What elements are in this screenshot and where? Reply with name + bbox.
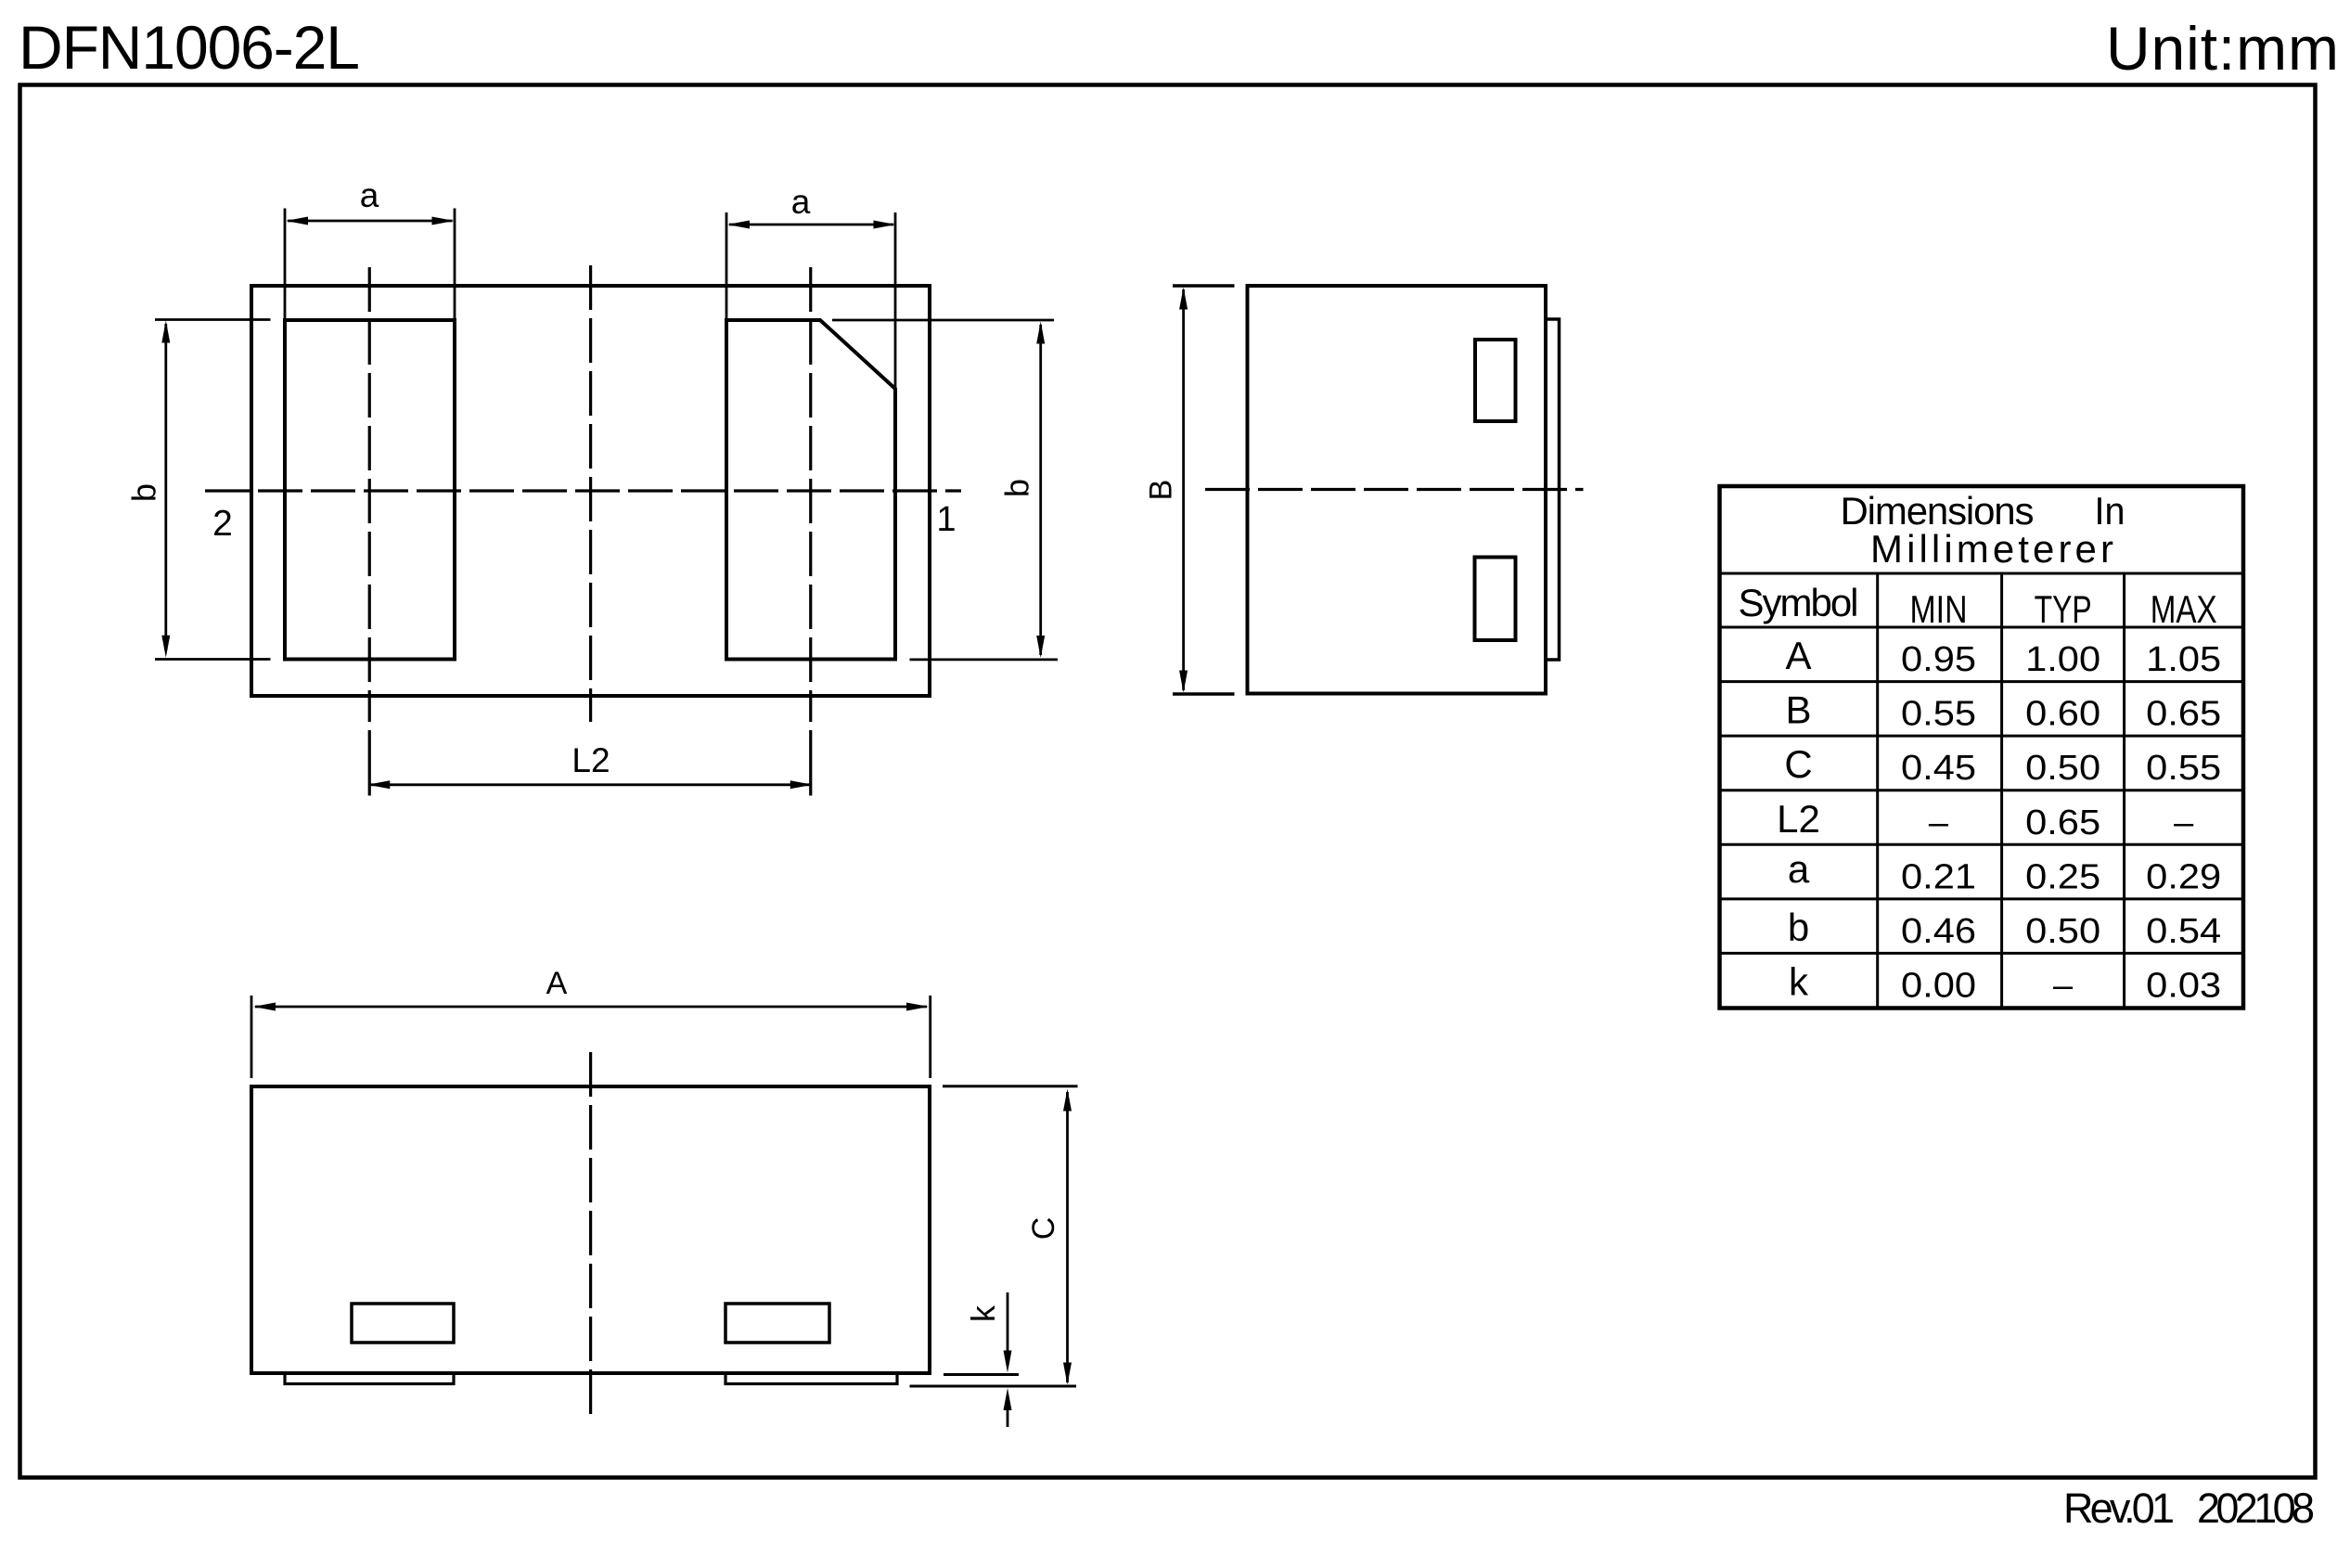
svg-text:DFN1006-2L: DFN1006-2L bbox=[19, 13, 360, 82]
svg-text:0.95: 0.95 bbox=[1901, 640, 1976, 679]
svg-text:–: – bbox=[2174, 803, 2194, 842]
svg-text:a: a bbox=[360, 176, 379, 214]
svg-text:0.65: 0.65 bbox=[2146, 695, 2221, 734]
svg-text:Unit:mm: Unit:mm bbox=[2106, 14, 2339, 83]
svg-text:b: b bbox=[1788, 906, 1809, 949]
svg-text:0.54: 0.54 bbox=[2146, 912, 2221, 951]
svg-text:C: C bbox=[1026, 1217, 1061, 1240]
svg-text:k: k bbox=[1789, 960, 1809, 1004]
svg-text:L2: L2 bbox=[571, 741, 610, 779]
svg-text:202108: 202108 bbox=[2197, 1484, 2315, 1532]
svg-text:–: – bbox=[1929, 803, 1949, 842]
svg-text:0.45: 0.45 bbox=[1901, 749, 1976, 788]
svg-text:0.21: 0.21 bbox=[1901, 857, 1976, 896]
svg-text:0.50: 0.50 bbox=[2025, 749, 2100, 788]
svg-text:MAX: MAX bbox=[2151, 587, 2217, 631]
svg-text:A: A bbox=[1785, 634, 1811, 677]
svg-text:b: b bbox=[998, 479, 1036, 497]
svg-text:0.55: 0.55 bbox=[2146, 749, 2221, 788]
svg-text:a: a bbox=[1788, 847, 1810, 891]
svg-text:1.05: 1.05 bbox=[2146, 640, 2221, 679]
svg-text:Dimensions: Dimensions bbox=[1841, 489, 2035, 533]
svg-text:–: – bbox=[2053, 967, 2074, 1006]
svg-text:B: B bbox=[1785, 688, 1811, 732]
svg-text:A: A bbox=[546, 966, 568, 1001]
svg-text:0.29: 0.29 bbox=[2146, 857, 2221, 896]
svg-text:a: a bbox=[791, 183, 811, 221]
svg-text:0.55: 0.55 bbox=[1901, 695, 1976, 734]
svg-text:b: b bbox=[125, 483, 163, 502]
svg-text:0.65: 0.65 bbox=[2025, 803, 2100, 842]
svg-text:Millimeterer: Millimeterer bbox=[1870, 527, 2113, 571]
svg-text:C: C bbox=[1784, 742, 1812, 786]
svg-text:B: B bbox=[1144, 480, 1179, 501]
svg-text:0.00: 0.00 bbox=[1901, 967, 1976, 1006]
svg-text:0.50: 0.50 bbox=[2025, 912, 2100, 951]
svg-text:1: 1 bbox=[936, 500, 956, 539]
svg-text:0.03: 0.03 bbox=[2146, 967, 2221, 1006]
svg-text:0.46: 0.46 bbox=[1901, 912, 1976, 951]
svg-text:In: In bbox=[2095, 489, 2125, 533]
svg-text:TYP: TYP bbox=[2035, 587, 2092, 631]
svg-text:Rev.01: Rev.01 bbox=[2063, 1484, 2175, 1532]
svg-text:k: k bbox=[964, 1305, 1002, 1322]
svg-text:1.00: 1.00 bbox=[2025, 640, 2100, 679]
svg-text:L2: L2 bbox=[1777, 797, 1820, 841]
svg-text:0.25: 0.25 bbox=[2025, 857, 2100, 896]
svg-text:0.60: 0.60 bbox=[2025, 695, 2100, 734]
svg-text:2: 2 bbox=[212, 504, 233, 544]
svg-text:MIN: MIN bbox=[1910, 587, 1968, 631]
svg-text:Symbol: Symbol bbox=[1739, 581, 1859, 624]
